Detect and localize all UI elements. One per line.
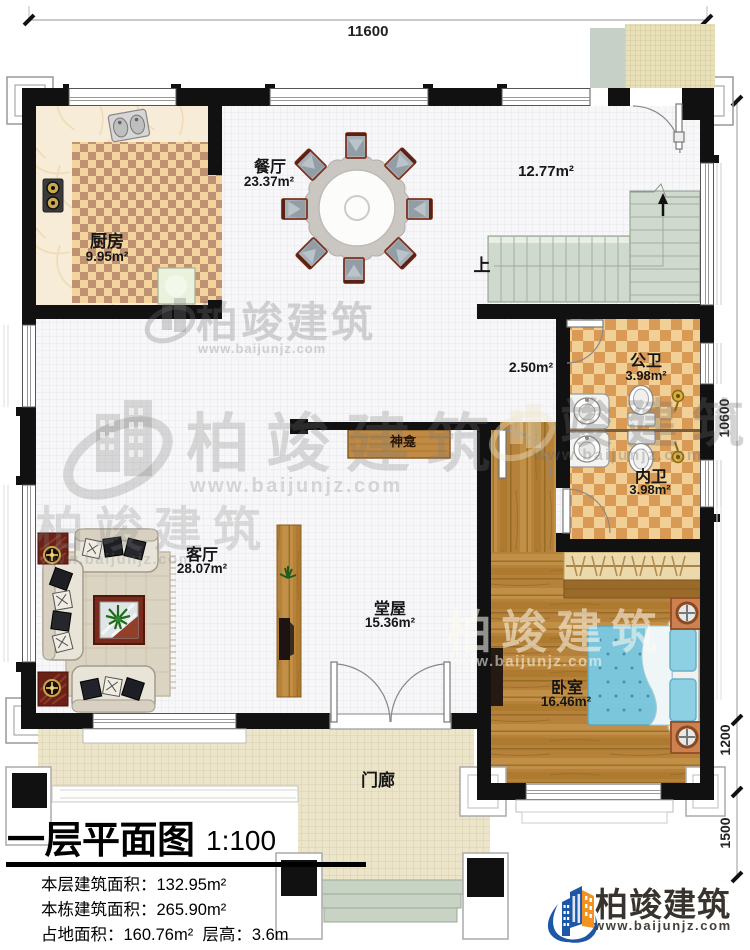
svg-text:3.98m²: 3.98m² [625, 368, 667, 383]
svg-text:11600: 11600 [348, 23, 389, 40]
svg-text:一层平面图: 一层平面图 [7, 820, 195, 862]
svg-text:16.46m²: 16.46m² [541, 694, 592, 709]
svg-text:柏竣建筑: 柏竣建筑 [186, 408, 506, 480]
svg-text:本栋建筑面积：265.90m²: 本栋建筑面积：265.90m² [41, 900, 227, 919]
svg-text:1200: 1200 [717, 724, 733, 755]
svg-text:www.baijunjz.com: www.baijunjz.com [197, 341, 326, 356]
svg-text:www.baijunjz.com: www.baijunjz.com [39, 551, 193, 568]
svg-text:柏竣建筑: 柏竣建筑 [446, 606, 666, 658]
svg-text:门廊: 门廊 [361, 770, 395, 790]
svg-text:占地面积：160.76m² 层高：3.6m: 占地面积：160.76m² 层高：3.6m [41, 925, 289, 944]
svg-text:1:100: 1:100 [206, 825, 276, 856]
svg-text:竣建筑: 竣建筑 [560, 396, 750, 454]
svg-text:1500: 1500 [717, 817, 733, 848]
svg-text:www.baijunjz.com: www.baijunjz.com [532, 447, 703, 464]
svg-text:柏竣建筑: 柏竣建筑 [36, 504, 272, 557]
svg-text:厨房: 厨房 [90, 231, 124, 251]
svg-text:15.36m²: 15.36m² [365, 615, 416, 630]
svg-text:柏竣建筑: 柏竣建筑 [196, 299, 376, 346]
svg-text:神龛: 神龛 [390, 434, 417, 449]
svg-text:www.baijunjz.com: www.baijunjz.com [593, 918, 732, 933]
svg-text:3.98m²: 3.98m² [629, 482, 671, 497]
svg-text:12.77m²: 12.77m² [518, 163, 574, 180]
svg-text:23.37m²: 23.37m² [244, 174, 295, 189]
svg-text:2.50m²: 2.50m² [509, 359, 554, 375]
svg-text:本层建筑面积：132.95m²: 本层建筑面积：132.95m² [41, 875, 227, 894]
svg-text:上: 上 [474, 256, 491, 275]
svg-text:www.baijunjz.com: www.baijunjz.com [449, 653, 603, 670]
svg-text:28.07m²: 28.07m² [177, 561, 228, 576]
svg-text:www.baijunjz.com: www.baijunjz.com [189, 475, 403, 497]
svg-text:9.95m²: 9.95m² [86, 249, 129, 264]
